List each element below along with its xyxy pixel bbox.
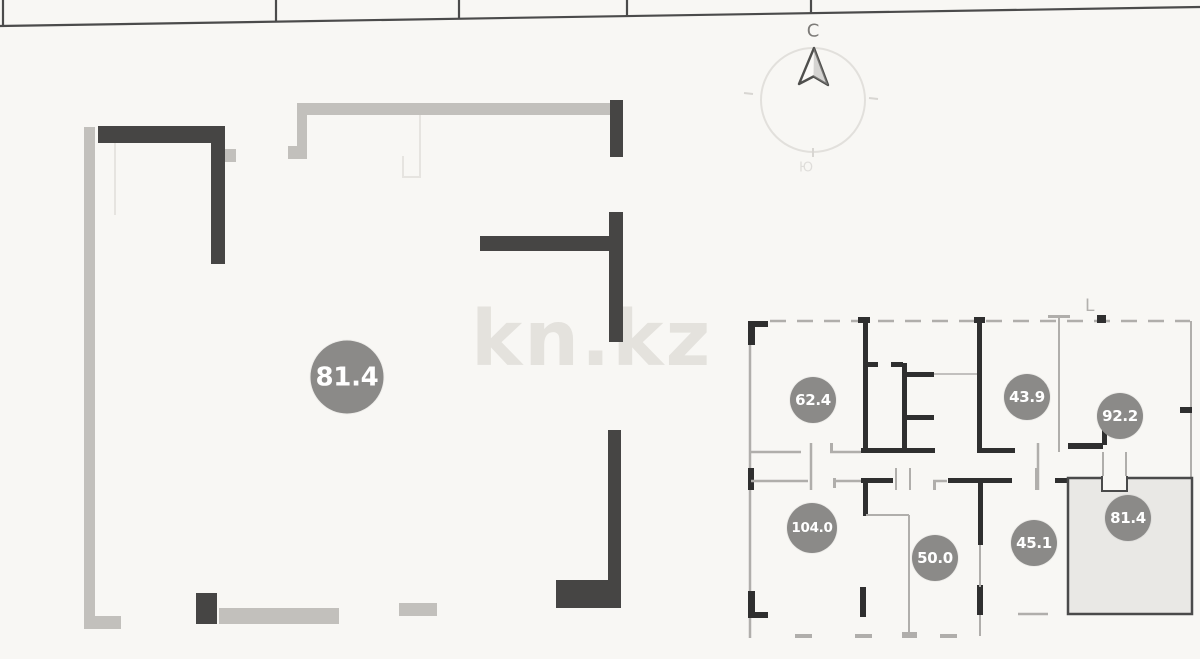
wall-mid-h xyxy=(480,236,623,251)
key-plan-bottom-dashes xyxy=(795,632,957,638)
area-badge-92-2: 92.2 xyxy=(1097,393,1143,439)
compass-rose xyxy=(744,48,878,157)
main-plan-faint-lines xyxy=(115,110,421,215)
wall-topleft-h xyxy=(98,126,225,143)
wall-left xyxy=(84,127,95,629)
wall-left-foot xyxy=(84,616,121,629)
area-badge-45-1: 45.1 xyxy=(1011,520,1057,566)
key-plan-upper-walls xyxy=(863,321,982,453)
wall-topleft-v xyxy=(211,126,225,264)
wall-mid-v xyxy=(609,212,623,342)
wall-bottom-short xyxy=(399,603,437,616)
wall-botright-foot xyxy=(556,580,621,608)
scale-bar xyxy=(0,0,1200,26)
wall-topright-v xyxy=(610,100,623,157)
unit-entry-notch xyxy=(1102,476,1127,491)
compass-east-tick xyxy=(869,98,878,99)
area-badge-43-9: 43.9 xyxy=(1004,374,1050,420)
north-arrow-shade xyxy=(814,48,829,85)
grid-axis-label: L xyxy=(1085,296,1094,316)
wall-botright-v xyxy=(608,430,621,582)
area-badge-62-4: 62.4 xyxy=(790,377,836,423)
key-plan-corridor-lower xyxy=(751,468,1068,490)
compass-west-tick xyxy=(744,93,753,94)
wall-top-step xyxy=(297,103,307,159)
key-plan-ttop xyxy=(1048,315,1070,318)
compass-north-label: C xyxy=(807,21,820,42)
wall-bottom-pier xyxy=(196,593,217,624)
wall-top xyxy=(297,103,612,115)
key-plan xyxy=(748,315,1192,638)
compass-south-label: Ю xyxy=(799,161,813,176)
area-badge-50-0: 50.0 xyxy=(912,535,958,581)
floorplan-scan: kn.kz xyxy=(0,0,1200,659)
wall-bottom xyxy=(219,608,339,624)
wall-top-step-nub xyxy=(288,146,297,159)
area-badge-104-0: 104.0 xyxy=(787,503,837,553)
unit-entry-jambs xyxy=(1103,452,1126,476)
scale-bar-line xyxy=(0,7,1200,26)
wall-nub xyxy=(225,149,236,162)
area-badge-81-4: 81.4 xyxy=(1105,495,1151,541)
area-badge-main: 81.4 xyxy=(311,341,384,414)
